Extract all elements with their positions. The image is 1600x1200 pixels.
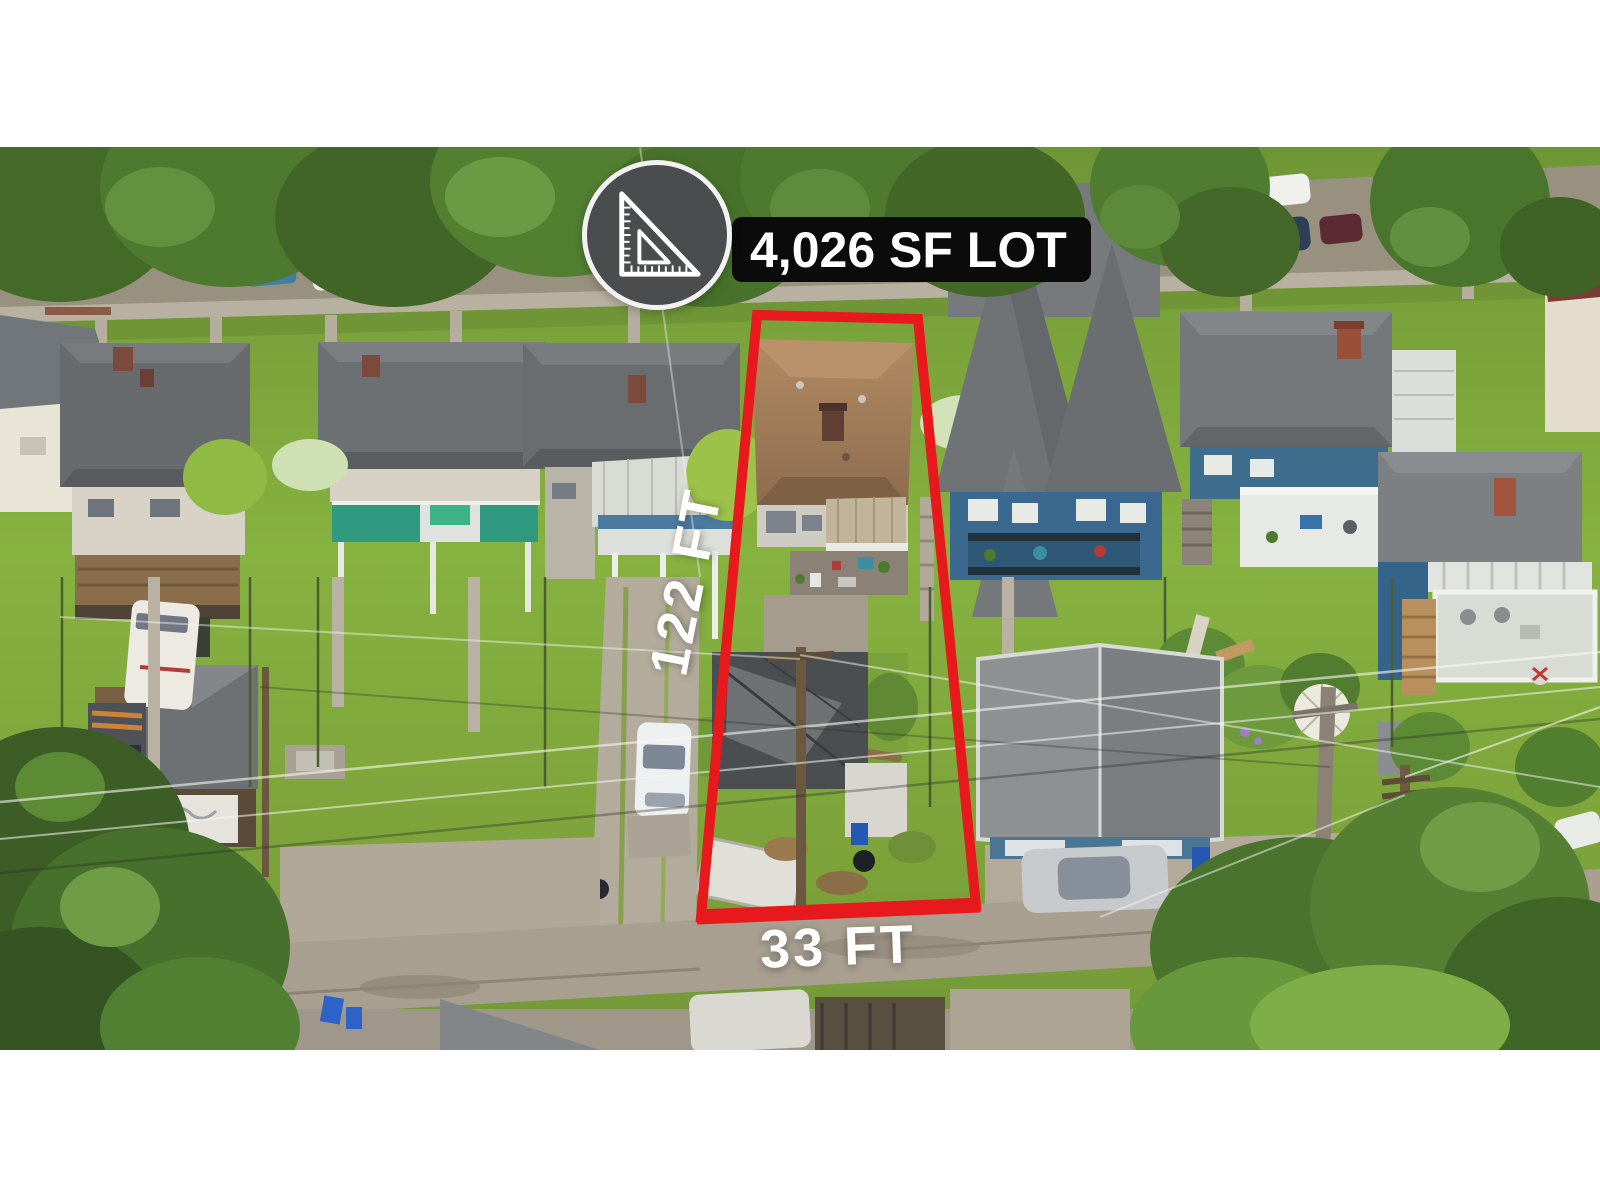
lot-size-label: 4,026 SF LOT xyxy=(750,221,1067,279)
white-side-deck xyxy=(1392,350,1456,454)
green-balcony xyxy=(332,502,420,542)
red-chimney xyxy=(1494,478,1516,516)
blue-bin xyxy=(346,1007,362,1029)
rv-roof xyxy=(689,989,812,1050)
blue-bin xyxy=(851,823,868,845)
set-square-ruler-icon xyxy=(608,188,706,282)
large-deck xyxy=(1435,592,1595,680)
chimney xyxy=(362,355,380,377)
chimney xyxy=(113,347,133,371)
lot-size-badge: 4,026 SF LOT xyxy=(732,217,1091,282)
patio xyxy=(764,595,868,653)
wood-stairs xyxy=(1402,599,1436,695)
pergola xyxy=(1428,562,1592,592)
maroon-car xyxy=(1319,213,1364,245)
ruler-badge-circle xyxy=(582,160,732,310)
utility-pole xyxy=(262,667,269,877)
letterbox-top xyxy=(0,0,1600,147)
chimney xyxy=(822,407,844,441)
letterbox-bottom xyxy=(0,1053,1600,1200)
wood-shed xyxy=(815,997,945,1050)
aerial-photo: 4,026 SF LOT 12 xyxy=(0,147,1600,1050)
under-deck xyxy=(790,551,908,595)
chimney xyxy=(628,375,646,403)
trash-bin xyxy=(853,850,875,872)
stairs xyxy=(1182,499,1212,565)
red-chimney xyxy=(1337,325,1361,359)
aerial-scene xyxy=(0,147,1600,1050)
garden-arch xyxy=(45,307,111,315)
real-estate-listing-image: 4,026 SF LOT 12 xyxy=(0,0,1600,1200)
lot-frontage-label: 33 FT xyxy=(759,913,917,980)
chimney xyxy=(140,369,154,387)
